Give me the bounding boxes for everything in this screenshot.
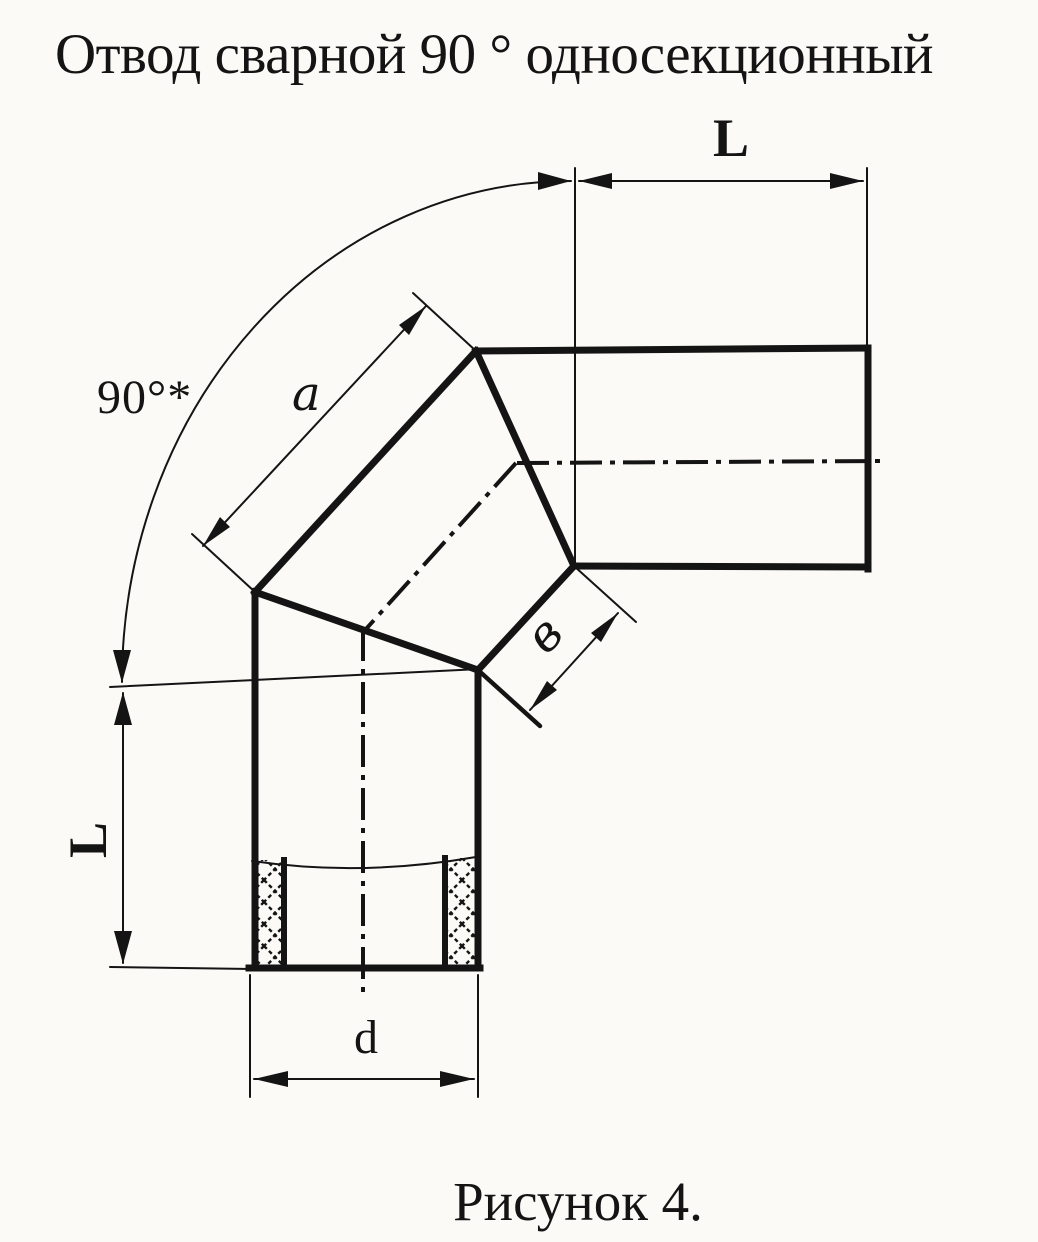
length-left-arrow-top	[114, 692, 132, 725]
socket-hatch-right	[447, 858, 476, 966]
angle-dimension: 90°*	[97, 172, 571, 683]
elbow-technical-drawing: Отвод сварной 90 ° односекционный 90°*	[0, 0, 1038, 1242]
extension-line-a-lower	[192, 534, 255, 592]
weld-seam-upper	[476, 351, 574, 566]
horizontal-pipe-bottom-edge	[574, 566, 868, 567]
length-top-arrow-left	[579, 173, 612, 189]
socket-hatch-left	[252, 860, 282, 966]
scanned-drawing-page: Отвод сварной 90 ° односекционный 90°*	[0, 0, 1038, 1242]
diameter-arrow-left	[254, 1071, 288, 1087]
diameter-dimension: d	[250, 975, 478, 1097]
segment-inner-label: в	[515, 605, 575, 664]
horizontal-pipe-top-edge	[476, 348, 868, 351]
segment-outer-dimension: a	[192, 293, 476, 592]
angle-label: 90°*	[97, 371, 192, 424]
segment-outer-dimension-line	[203, 306, 426, 546]
centerlines	[363, 461, 881, 1000]
length-left-arrow-bottom	[114, 931, 132, 964]
weld-seam-lower	[255, 592, 478, 670]
length-top-dimension: L	[575, 108, 867, 564]
drawing-title: Отвод сварной 90 ° односекционный	[55, 23, 933, 86]
segment-outer-label: a	[292, 366, 321, 422]
angle-arc	[122, 181, 571, 682]
extension-line-upper	[110, 669, 480, 687]
extension-line-lower	[110, 967, 252, 969]
segment-axis-centerline	[366, 463, 516, 629]
figure-caption: Рисунок 4.	[453, 1171, 703, 1232]
diameter-arrow-right	[440, 1071, 474, 1087]
length-top-arrow-right	[830, 173, 863, 189]
length-top-label: L	[713, 108, 749, 168]
extension-line-v-upper	[574, 566, 636, 622]
extension-line-v-lower	[478, 670, 540, 726]
extension-line-a-upper	[413, 293, 476, 351]
angle-arc-arrow-top	[538, 172, 571, 190]
segment-outer-edge	[255, 351, 476, 592]
diameter-label: d	[354, 1011, 378, 1064]
horizontal-axis-centerline	[517, 461, 881, 463]
angle-arc-arrow-bottom	[113, 650, 131, 683]
length-left-label: L	[58, 822, 118, 858]
